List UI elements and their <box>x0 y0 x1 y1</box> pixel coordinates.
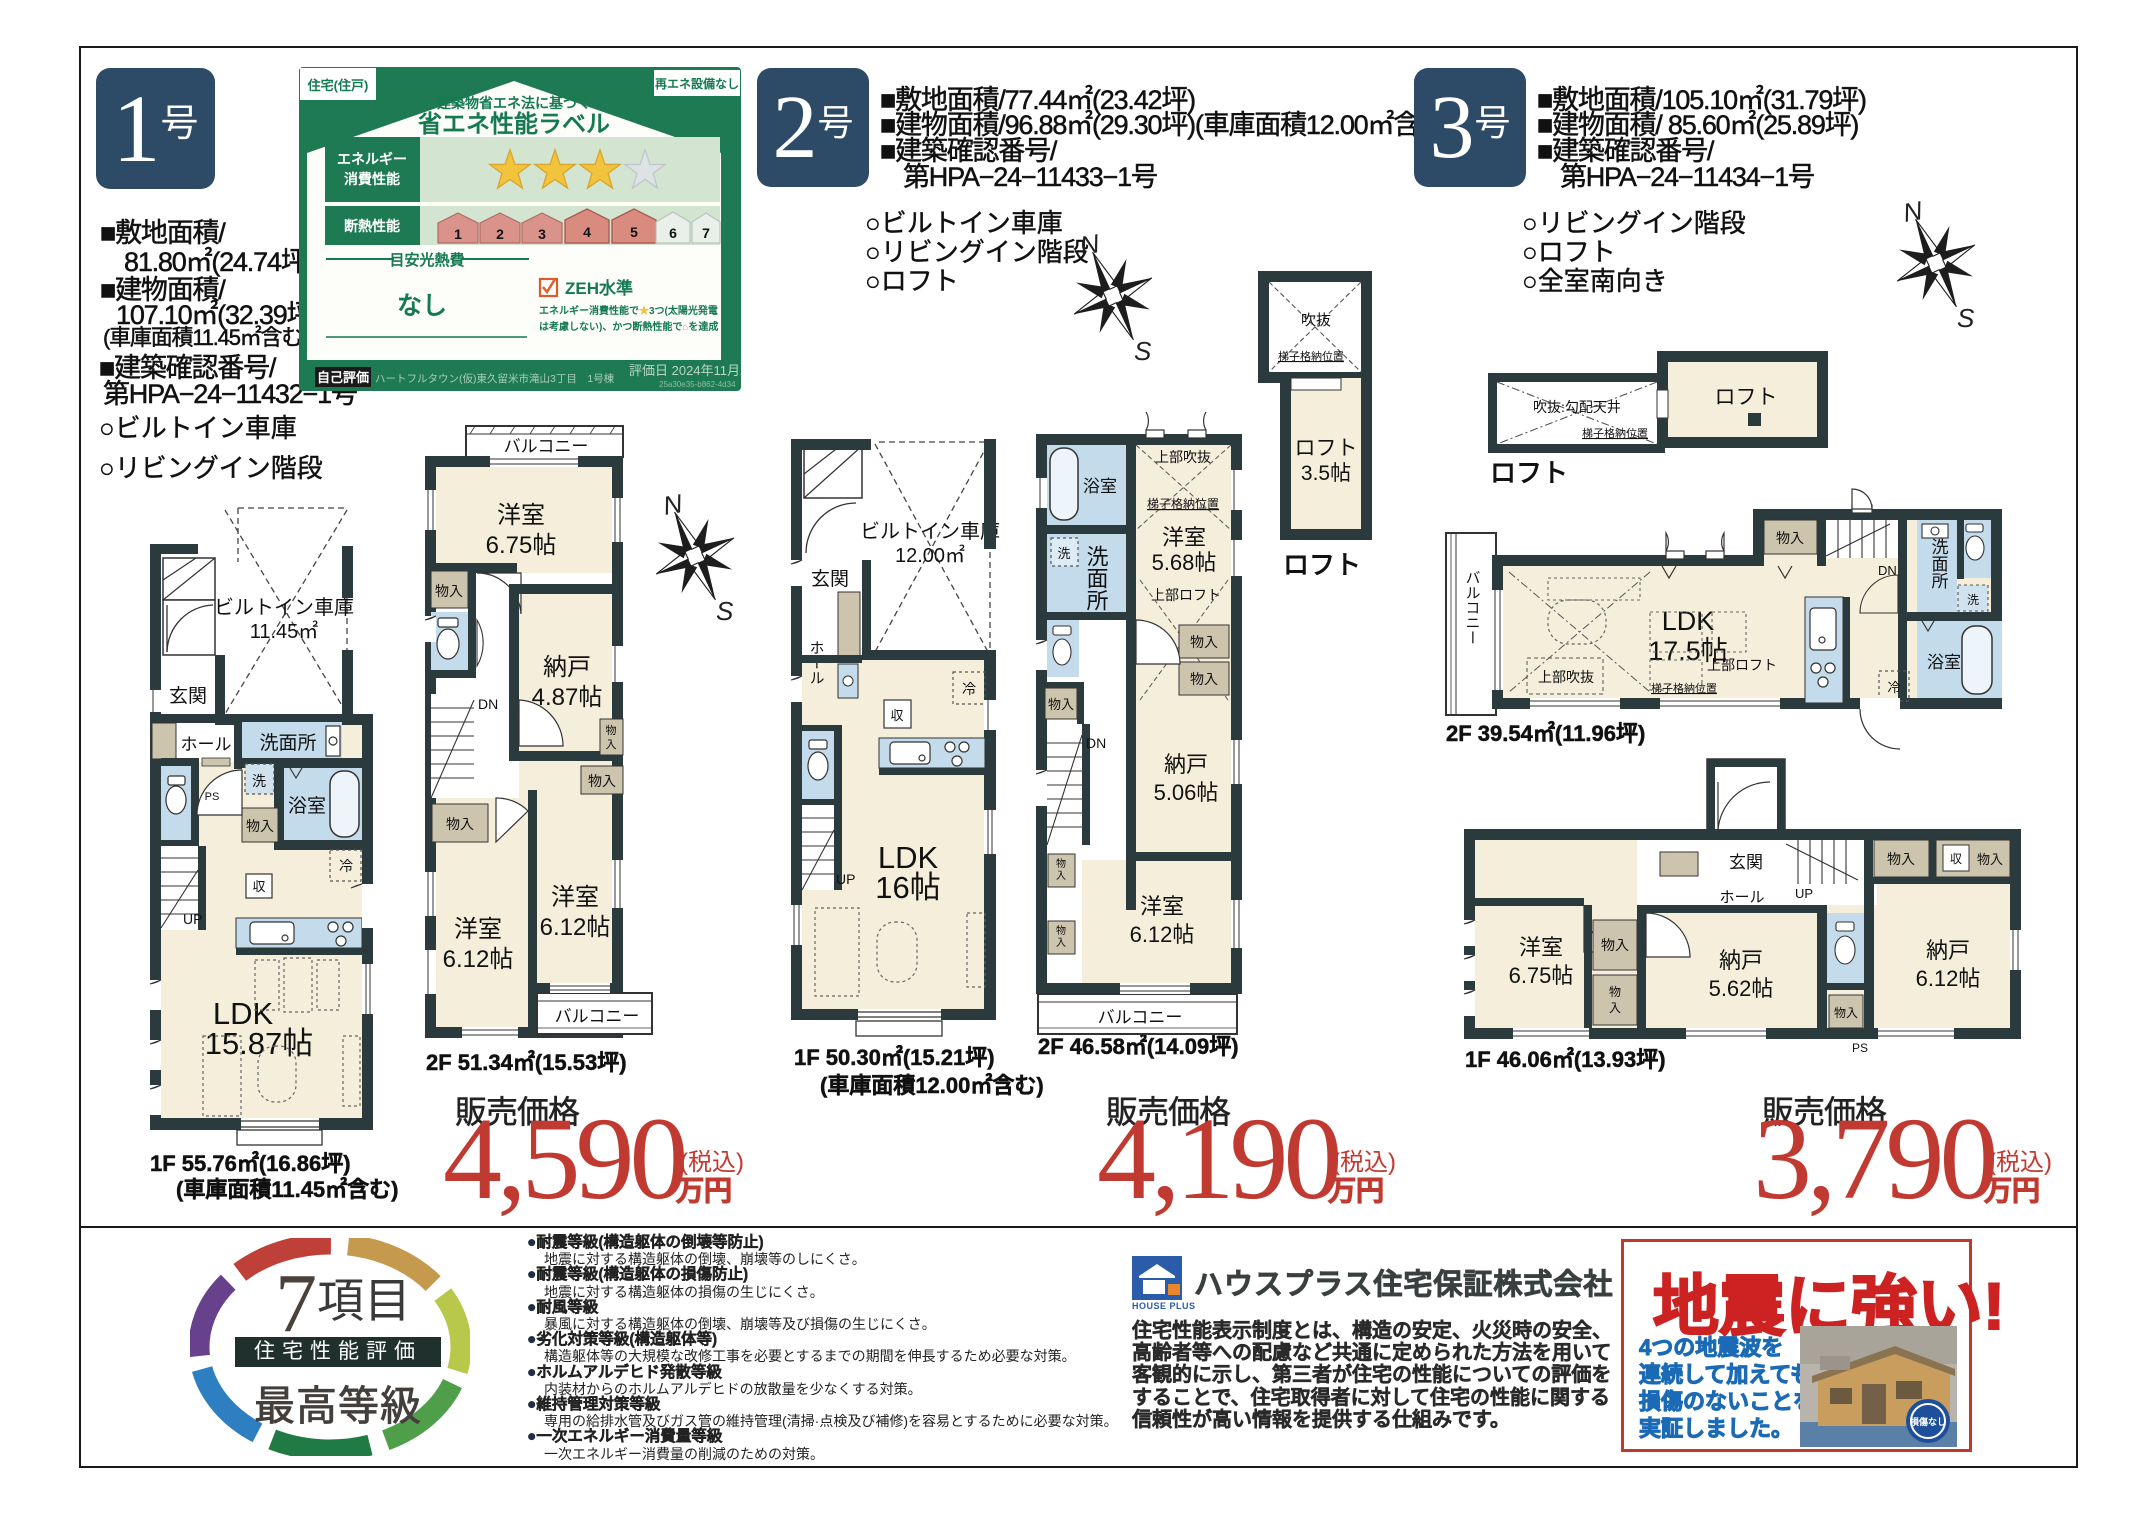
svg-text:N: N <box>1078 228 1102 261</box>
svg-text:洋室: 洋室 <box>551 884 599 911</box>
svg-text:ホール: ホール <box>1719 889 1764 906</box>
svg-text:UP: UP <box>183 911 202 927</box>
svg-text:PS: PS <box>1852 1041 1868 1055</box>
svg-text:5.68帖: 5.68帖 <box>1152 550 1217 575</box>
svg-text:S: S <box>1957 303 1975 333</box>
svg-text:梯子格納位置: 梯子格納位置 <box>1278 349 1344 363</box>
svg-text:物入: 物入 <box>1601 937 1629 953</box>
svg-text:6.12帖: 6.12帖 <box>443 946 514 973</box>
svg-text:ロフト: ロフト <box>1715 386 1778 409</box>
svg-text:物入: 物入 <box>1190 634 1218 650</box>
svg-text:6.12帖: 6.12帖 <box>1916 966 1981 991</box>
svg-text:N: N <box>661 488 685 521</box>
svg-text:物入: 物入 <box>1048 697 1074 712</box>
svg-text:梯子格納位置: 梯子格納位置 <box>1147 496 1219 511</box>
svg-text:梯子格納位置: 梯子格納位置 <box>1651 681 1717 695</box>
svg-text:納戸: 納戸 <box>543 654 591 681</box>
svg-text:物入: 物入 <box>1887 851 1915 867</box>
svg-text:16帖: 16帖 <box>875 870 940 905</box>
svg-text:S: S <box>716 596 734 626</box>
svg-text:玄関: 玄関 <box>169 685 207 707</box>
svg-text:上部吹抜: 上部吹抜 <box>1155 449 1211 465</box>
svg-text:S: S <box>1134 336 1152 366</box>
svg-text:12.00㎡: 12.00㎡ <box>895 543 965 567</box>
svg-text:収: 収 <box>252 879 265 894</box>
svg-text:物入: 物入 <box>1977 852 2003 867</box>
svg-text:PS: PS <box>205 791 220 803</box>
svg-text:UP: UP <box>1795 886 1813 901</box>
svg-text:梯子格納位置: 梯子格納位置 <box>1582 426 1648 440</box>
svg-text:N: N <box>1901 195 1925 228</box>
svg-text:ビルトイン車庫: ビルトイン車庫 <box>860 520 1000 543</box>
svg-text:洋室: 洋室 <box>1162 525 1206 550</box>
svg-text:バルコニー: バルコニー <box>555 1007 640 1026</box>
svg-text:入: 入 <box>1056 938 1066 949</box>
svg-text:洗: 洗 <box>1057 546 1070 561</box>
svg-text:納戸: 納戸 <box>1926 938 1970 963</box>
svg-text:上部ロフト: 上部ロフト <box>1707 657 1777 673</box>
svg-text:物: 物 <box>606 723 617 737</box>
svg-text:ビルトイン車庫: ビルトイン車庫 <box>214 596 354 619</box>
svg-text:物入: 物入 <box>1834 1006 1858 1020</box>
svg-text:洗面所: 洗面所 <box>1084 545 1109 611</box>
svg-text:物: 物 <box>1056 857 1066 870</box>
svg-text:6.12帖: 6.12帖 <box>540 914 611 941</box>
svg-text:洋室: 洋室 <box>454 916 502 943</box>
svg-text:収: 収 <box>1950 852 1962 866</box>
svg-text:洗面所: 洗面所 <box>259 732 316 754</box>
svg-text:バルコニー: バルコニー <box>1464 570 1481 645</box>
svg-text:3.5帖: 3.5帖 <box>1301 462 1351 485</box>
svg-text:上部吹抜: 上部吹抜 <box>1538 669 1594 685</box>
svg-text:物入: 物入 <box>1190 671 1218 687</box>
svg-text:6.75帖: 6.75帖 <box>486 532 557 559</box>
svg-text:上部ロフト: 上部ロフト <box>1151 587 1221 603</box>
svg-text:洋室: 洋室 <box>1140 894 1184 919</box>
svg-text:冷: 冷 <box>339 858 353 874</box>
svg-text:物入: 物入 <box>246 818 274 834</box>
svg-text:UP: UP <box>836 871 855 887</box>
svg-text:玄関: 玄関 <box>811 568 849 590</box>
svg-text:納戸: 納戸 <box>1164 752 1208 777</box>
svg-text:バルコニー: バルコニー <box>1098 1008 1183 1027</box>
svg-text:入: 入 <box>1609 1001 1621 1015</box>
svg-text:物入: 物入 <box>446 816 474 832</box>
svg-text:6.12帖: 6.12帖 <box>1130 922 1195 947</box>
svg-text:玄関: 玄関 <box>1729 853 1763 872</box>
svg-text:冷: 冷 <box>1887 680 1900 695</box>
svg-text:5.62帖: 5.62帖 <box>1709 976 1774 1001</box>
svg-text:物入: 物入 <box>435 583 463 599</box>
svg-text:ロフト: ロフト <box>1295 437 1358 460</box>
svg-text:入: 入 <box>606 739 617 751</box>
svg-text:バルコニー: バルコニー <box>504 437 589 456</box>
svg-text:入: 入 <box>1056 871 1066 882</box>
svg-text:ホール: ホール <box>181 735 232 754</box>
svg-text:収: 収 <box>890 708 903 723</box>
svg-text:物: 物 <box>1609 985 1621 999</box>
svg-text:吹抜: 吹抜 <box>1301 312 1331 329</box>
svg-text:浴室: 浴室 <box>288 795 326 817</box>
svg-text:損傷なし: 損傷なし <box>1910 1416 1946 1427</box>
svg-text:DN: DN <box>1086 735 1106 751</box>
svg-text:洗: 洗 <box>252 773 266 789</box>
svg-text:11.45㎡: 11.45㎡ <box>250 619 319 643</box>
svg-text:DN: DN <box>478 696 498 712</box>
svg-text:物入: 物入 <box>1776 530 1804 546</box>
svg-text:物: 物 <box>1056 924 1066 937</box>
svg-text:洗面所: 洗面所 <box>1929 538 1949 589</box>
svg-text:LDK: LDK <box>1662 606 1715 636</box>
svg-text:洋室: 洋室 <box>1519 935 1563 960</box>
svg-text:納戸: 納戸 <box>1719 948 1763 973</box>
svg-text:浴室: 浴室 <box>1083 477 1117 496</box>
svg-text:洋室: 洋室 <box>497 502 545 529</box>
svg-text:物入: 物入 <box>588 773 616 789</box>
svg-text:浴室: 浴室 <box>1927 653 1961 672</box>
svg-text:洗: 洗 <box>1967 593 1979 607</box>
svg-text:吹抜:勾配天井: 吹抜:勾配天井 <box>1533 399 1621 415</box>
svg-text:6.75帖: 6.75帖 <box>1509 963 1574 988</box>
svg-text:冷: 冷 <box>962 681 976 697</box>
svg-text:HOUSE PLUS: HOUSE PLUS <box>1132 1301 1196 1310</box>
svg-text:5.06帖: 5.06帖 <box>1154 780 1219 805</box>
